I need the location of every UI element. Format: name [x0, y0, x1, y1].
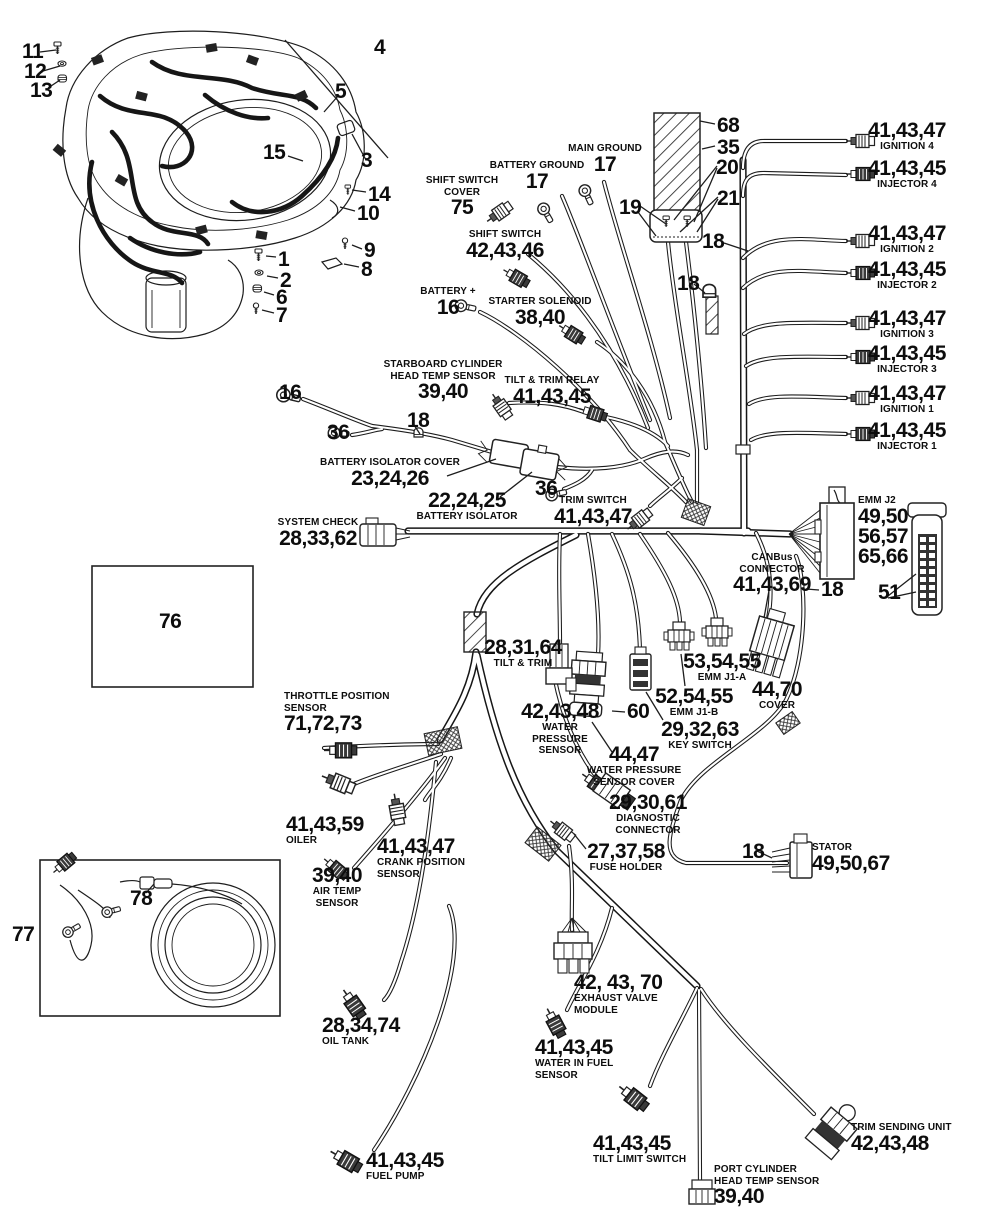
- callout-water-in-fuel-sensor-cap: SENSOR: [535, 1070, 613, 1082]
- callout-clamp-18c: 18: [407, 411, 429, 431]
- inset-box-77: [40, 850, 280, 1016]
- callout-fuse-holder-num: 27,37,58: [587, 842, 665, 862]
- callout-cowl-5-num: 5: [335, 82, 346, 102]
- callout-harness-15: 15: [263, 143, 285, 163]
- callout-fuel-pump-num: 41,43,45: [366, 1151, 444, 1171]
- callout-oil-tank-num: 28,34,74: [322, 1016, 400, 1036]
- harness-parts-diagram: { "diagram": { "kind": "outboard-engine-…: [0, 0, 1000, 1207]
- callout-stator-num: 49,50,67: [812, 854, 890, 874]
- callout-battery-isolator-cap: BATTERY ISOLATOR: [416, 511, 517, 523]
- callout-cowl-5: 5: [335, 82, 346, 102]
- callout-exhaust-valve-module-cap: EXHAUST VALVE: [574, 993, 662, 1005]
- callout-ignition-4: 41,43,47IGNITION 4: [868, 121, 946, 153]
- callout-tilt-limit-switch-cap: TILT LIMIT SWITCH: [593, 1154, 686, 1166]
- callout-trim-sending-unit: TRIM SENDING UNIT42,43,48: [851, 1122, 952, 1154]
- callout-inline-78: 78: [130, 889, 152, 909]
- callout-bolt-1-num: 1: [278, 250, 289, 270]
- clamp-18b-part: [703, 284, 718, 334]
- callout-canbus-connector-cap: CANBus: [733, 552, 811, 564]
- callout-grommet-13: 13: [30, 81, 52, 101]
- callout-main-ground-num: 17: [568, 155, 642, 175]
- callout-air-temp-sensor-num: 39,40: [312, 866, 362, 886]
- callout-water-pressure-sensor-num: 42,43,48: [521, 702, 599, 722]
- callout-crank-position-sensor-cap: SENSOR: [377, 869, 465, 881]
- callout-ring-16-num: 16: [279, 383, 301, 403]
- callout-grommet-60: 60: [627, 702, 649, 722]
- callout-tilt-limit-switch-num: 41,43,45: [593, 1134, 686, 1154]
- callout-injector-4-cap: INJECTOR 4: [868, 179, 946, 191]
- callout-inset-76-num: 76: [159, 612, 181, 632]
- callout-oiler-cap: OILER: [286, 835, 364, 847]
- callout-trim-switch: TRIM SWITCH41,43,47: [554, 495, 632, 527]
- system-check-connector: [360, 518, 410, 546]
- callout-shift-switch-cover: SHIFT SWITCHCOVER75: [426, 175, 498, 218]
- callout-battery-isolator-cover-num: 23,24,26: [320, 469, 460, 489]
- stator-connector: [772, 834, 812, 878]
- callout-mount-3-num: 3: [361, 151, 372, 171]
- callout-fuse-holder-cap: FUSE HOLDER: [587, 862, 665, 874]
- callout-injector-1: 41,43,45INJECTOR 1: [868, 421, 946, 453]
- callout-assembly-4: 4: [374, 38, 385, 58]
- callout-emm-j1b-num: 52,54,55: [655, 687, 733, 707]
- callout-port-cylinder-head-temp-num: 39,40: [714, 1187, 819, 1207]
- callout-air-temp-sensor: 39,40AIR TEMPSENSOR: [312, 866, 362, 909]
- callout-clamp-18a-num: 18: [702, 232, 724, 252]
- battery-isolator-part: [476, 435, 570, 482]
- stem-collar: [736, 445, 750, 454]
- callout-canbus-cover: 44,70COVER: [752, 680, 802, 712]
- callout-diagnostic-connector-num: 29,30,61: [609, 793, 687, 813]
- callout-fuse-holder: 27,37,58FUSE HOLDER: [587, 842, 665, 874]
- callout-crank-position-sensor-num: 41,43,47: [377, 837, 465, 857]
- callout-emm-j1a-cap: EMM J1-A: [683, 672, 761, 684]
- callout-clamp-18c-num: 18: [407, 411, 429, 431]
- callout-bolt-20-num: 20: [716, 158, 738, 178]
- harness-sleeve: [650, 113, 702, 242]
- callout-starter-solenoid-num: 38,40: [488, 308, 591, 328]
- callout-bolt-20: 20: [716, 158, 738, 178]
- callout-injector-2-cap: INJECTOR 2: [868, 280, 946, 292]
- callout-nut-21: 21: [717, 189, 739, 209]
- callout-clamp-18b-num: 18: [677, 274, 699, 294]
- callout-water-pressure-sensor-cover-cap: SENSOR COVER: [587, 777, 682, 789]
- callout-injector-3-num: 41,43,45: [868, 344, 946, 364]
- callout-ignition-2-cap: IGNITION 2: [868, 244, 946, 256]
- callout-starboard-head-temp: STARBOARD CYLINDERHEAD TEMP SENSOR39,40: [384, 359, 503, 402]
- callout-pin-block-51: 51: [878, 583, 900, 603]
- callout-battery-plus: BATTERY +16: [420, 286, 475, 318]
- callout-ignition-2-num: 41,43,47: [868, 224, 946, 244]
- callout-battery-plus-num: 16: [420, 298, 475, 318]
- callout-throttle-position-sensor-cap: THROTTLE POSITION: [284, 691, 390, 703]
- callout-injector-3: 41,43,45INJECTOR 3: [868, 344, 946, 376]
- callout-grommet-60-num: 60: [627, 702, 649, 722]
- callout-sleeve-68-num: 68: [717, 116, 739, 136]
- callout-starter-solenoid: STARTER SOLENOID38,40: [488, 296, 591, 328]
- callout-hook-10-num: 10: [357, 204, 379, 224]
- callout-fuel-pump: 41,43,45FUEL PUMP: [366, 1151, 444, 1183]
- callout-battery-ground-num: 17: [490, 172, 585, 192]
- callout-canbus-connector: CANBusCONNECTOR41,43,69: [733, 552, 811, 595]
- callout-injector-1-cap: INJECTOR 1: [868, 441, 946, 453]
- callout-ring-36a-num: 36: [327, 423, 349, 443]
- callout-canbus-connector-num: 41,43,69: [733, 575, 811, 595]
- callout-starboard-head-temp-cap: STARBOARD CYLINDER: [384, 359, 503, 371]
- callout-ignition-4-num: 41,43,47: [868, 121, 946, 141]
- callout-water-in-fuel-sensor-num: 41,43,45: [535, 1038, 613, 1058]
- callout-main-ground: MAIN GROUND17: [568, 143, 642, 175]
- callout-harness-15-num: 15: [263, 143, 285, 163]
- callout-emm-j1a-num: 53,54,55: [683, 652, 761, 672]
- callout-water-pressure-sensor-cap: WATER: [521, 722, 599, 734]
- callout-battery-isolator-cover: BATTERY ISOLATOR COVER23,24,26: [320, 457, 460, 489]
- callout-trim-switch-num: 41,43,47: [554, 507, 632, 527]
- callout-diagnostic-connector: 29,30,61DIAGNOSTICCONNECTOR: [609, 793, 687, 836]
- callout-injector-2: 41,43,45INJECTOR 2: [868, 260, 946, 292]
- callout-clamp-18e-num: 18: [742, 842, 764, 862]
- callout-stator: STATOR49,50,67: [812, 842, 890, 874]
- callout-exhaust-valve-module: 42, 43, 70EXHAUST VALVEMODULE: [574, 973, 662, 1016]
- callout-hook-10: 10: [357, 204, 379, 224]
- callout-shift-switch: SHIFT SWITCH42,43,46: [466, 229, 544, 261]
- callout-grommet-13-num: 13: [30, 81, 52, 101]
- stator-wrap: [776, 712, 800, 735]
- callout-sleeve-35-num: 35: [717, 138, 739, 158]
- callout-mount-3: 3: [361, 151, 372, 171]
- callout-air-temp-sensor-cap: SENSOR: [312, 898, 362, 910]
- port-cyl-connector: [689, 1180, 715, 1204]
- callout-tilt-trim-connector-cap: TILT & TRIM: [484, 658, 562, 670]
- trunk-wrap: [464, 612, 486, 652]
- callout-wires-19-num: 19: [619, 198, 641, 218]
- callout-screw-7-num: 7: [276, 306, 287, 326]
- callout-starboard-head-temp-num: 39,40: [384, 382, 503, 402]
- callout-emm-j2-num: 49,50: [858, 507, 908, 527]
- callout-inset-77: 77: [12, 925, 34, 945]
- callout-shift-switch-cover-num: 75: [426, 198, 498, 218]
- callout-shift-switch-cover-cap: SHIFT SWITCH: [426, 175, 498, 187]
- callout-water-pressure-sensor-cover: 44,47WATER PRESSURESENSOR COVER: [587, 745, 682, 788]
- evm-connector: [554, 918, 592, 973]
- callout-emm-j2: EMM J249,5056,5765,66: [858, 495, 908, 567]
- callout-battery-isolator-num: 22,24,25: [416, 491, 517, 511]
- callout-port-cylinder-head-temp-cap: PORT CYLINDER: [714, 1164, 819, 1176]
- callout-water-pressure-sensor-cover-cap: WATER PRESSURE: [587, 765, 682, 777]
- callout-water-in-fuel-sensor: 41,43,45WATER IN FUELSENSOR: [535, 1038, 613, 1081]
- callout-pin-block-51-num: 51: [878, 583, 900, 603]
- callout-fuel-pump-cap: FUEL PUMP: [366, 1171, 444, 1183]
- callout-ignition-2: 41,43,47IGNITION 2: [868, 224, 946, 256]
- callout-sleeve-35: 35: [717, 138, 739, 158]
- callout-trim-sending-unit-num: 42,43,48: [851, 1134, 952, 1154]
- callout-emm-j1b: 52,54,55EMM J1-B: [655, 687, 733, 719]
- callout-bolt-1: 1: [278, 250, 289, 270]
- callout-clamp-18d: 18: [821, 580, 843, 600]
- callout-clamp-18e: 18: [742, 842, 764, 862]
- callout-water-pressure-sensor-cap: PRESSURE: [521, 734, 599, 746]
- callout-emm-j2-num: 56,57: [858, 527, 908, 547]
- callout-assembly-4-num: 4: [374, 38, 385, 58]
- branch-wrap: [424, 727, 462, 756]
- callout-clip-8: 8: [361, 260, 372, 280]
- callout-injector-4-num: 41,43,45: [868, 159, 946, 179]
- callout-nut-21-num: 21: [717, 189, 739, 209]
- callout-oiler-num: 41,43,59: [286, 815, 364, 835]
- callout-oiler: 41,43,59OILER: [286, 815, 364, 847]
- callout-ignition-1: 41,43,47IGNITION 1: [868, 384, 946, 416]
- callout-oil-tank: 28,34,74OIL TANK: [322, 1016, 400, 1048]
- callout-battery-isolator: 22,24,25BATTERY ISOLATOR: [416, 491, 517, 523]
- callout-water-pressure-sensor-cover-num: 44,47: [587, 745, 682, 765]
- callout-canbus-cover-cap: COVER: [752, 700, 802, 712]
- callout-port-cylinder-head-temp: PORT CYLINDERHEAD TEMP SENSOR39,40: [714, 1164, 819, 1207]
- callout-emm-j2-num: 65,66: [858, 547, 908, 567]
- callout-wires-19: 19: [619, 198, 641, 218]
- callout-bolt-11: 11: [22, 42, 43, 62]
- callout-ignition-3-num: 41,43,47: [868, 309, 946, 329]
- pin-block-51-part: [908, 503, 946, 615]
- callout-air-temp-sensor-cap: AIR TEMP: [312, 886, 362, 898]
- callout-ring-36a: 36: [327, 423, 349, 443]
- callout-clamp-18d-num: 18: [821, 580, 843, 600]
- callout-injector-1-num: 41,43,45: [868, 421, 946, 441]
- callout-clamp-18b: 18: [677, 274, 699, 294]
- callout-inset-76: 76: [159, 612, 181, 632]
- callout-emm-j1a: 53,54,55EMM J1-A: [683, 652, 761, 684]
- callout-diagnostic-connector-cap: DIAGNOSTIC: [609, 813, 687, 825]
- callout-shift-switch-num: 42,43,46: [466, 241, 544, 261]
- callout-exhaust-valve-module-cap: MODULE: [574, 1005, 662, 1017]
- callout-clip-8-num: 8: [361, 260, 372, 280]
- callout-ignition-3-cap: IGNITION 3: [868, 329, 946, 341]
- callout-inset-77-num: 77: [12, 925, 34, 945]
- callout-oil-tank-cap: OIL TANK: [322, 1036, 400, 1048]
- callout-tilt-trim-relay-num: 41,43,45: [504, 387, 599, 407]
- callout-system-check: SYSTEM CHECK28,33,62: [278, 517, 359, 549]
- key-switch-connector: [630, 647, 651, 690]
- callout-ignition-1-cap: IGNITION 1: [868, 404, 946, 416]
- callout-ignition-4-cap: IGNITION 4: [868, 141, 946, 153]
- callout-ignition-1-num: 41,43,47: [868, 384, 946, 404]
- callout-tilt-trim-connector: 28,31,64TILT & TRIM: [484, 638, 562, 670]
- callout-ring-16: 16: [279, 383, 301, 403]
- callout-throttle-position-sensor: THROTTLE POSITIONSENSOR71,72,73: [284, 691, 390, 734]
- callout-tilt-trim-relay: TILT & TRIM RELAY41,43,45: [504, 375, 599, 407]
- callout-screw-7: 7: [276, 306, 287, 326]
- callout-ignition-3: 41,43,47IGNITION 3: [868, 309, 946, 341]
- callout-key-switch-num: 29,32,63: [661, 720, 739, 740]
- callout-throttle-position-sensor-num: 71,72,73: [284, 714, 390, 734]
- callout-crank-position-sensor-cap: CRANK POSITION: [377, 857, 465, 869]
- callout-emm-j1b-cap: EMM J1-B: [655, 707, 733, 719]
- callout-injector-2-num: 41,43,45: [868, 260, 946, 280]
- callout-tilt-limit-switch: 41,43,45TILT LIMIT SWITCH: [593, 1134, 686, 1166]
- callout-system-check-num: 28,33,62: [278, 529, 359, 549]
- callout-water-in-fuel-sensor-cap: WATER IN FUEL: [535, 1058, 613, 1070]
- callout-crank-position-sensor: 41,43,47CRANK POSITIONSENSOR: [377, 837, 465, 880]
- callout-tilt-trim-connector-num: 28,31,64: [484, 638, 562, 658]
- callout-injector-4: 41,43,45INJECTOR 4: [868, 159, 946, 191]
- callout-bolt-11-num: 11: [22, 42, 43, 62]
- callout-inline-78-num: 78: [130, 889, 152, 909]
- callout-exhaust-valve-module-num: 42, 43, 70: [574, 973, 662, 993]
- callout-diagnostic-connector-cap: CONNECTOR: [609, 825, 687, 837]
- callout-injector-3-cap: INJECTOR 3: [868, 364, 946, 376]
- callout-clamp-18a: 18: [702, 232, 724, 252]
- callout-sleeve-68: 68: [717, 116, 739, 136]
